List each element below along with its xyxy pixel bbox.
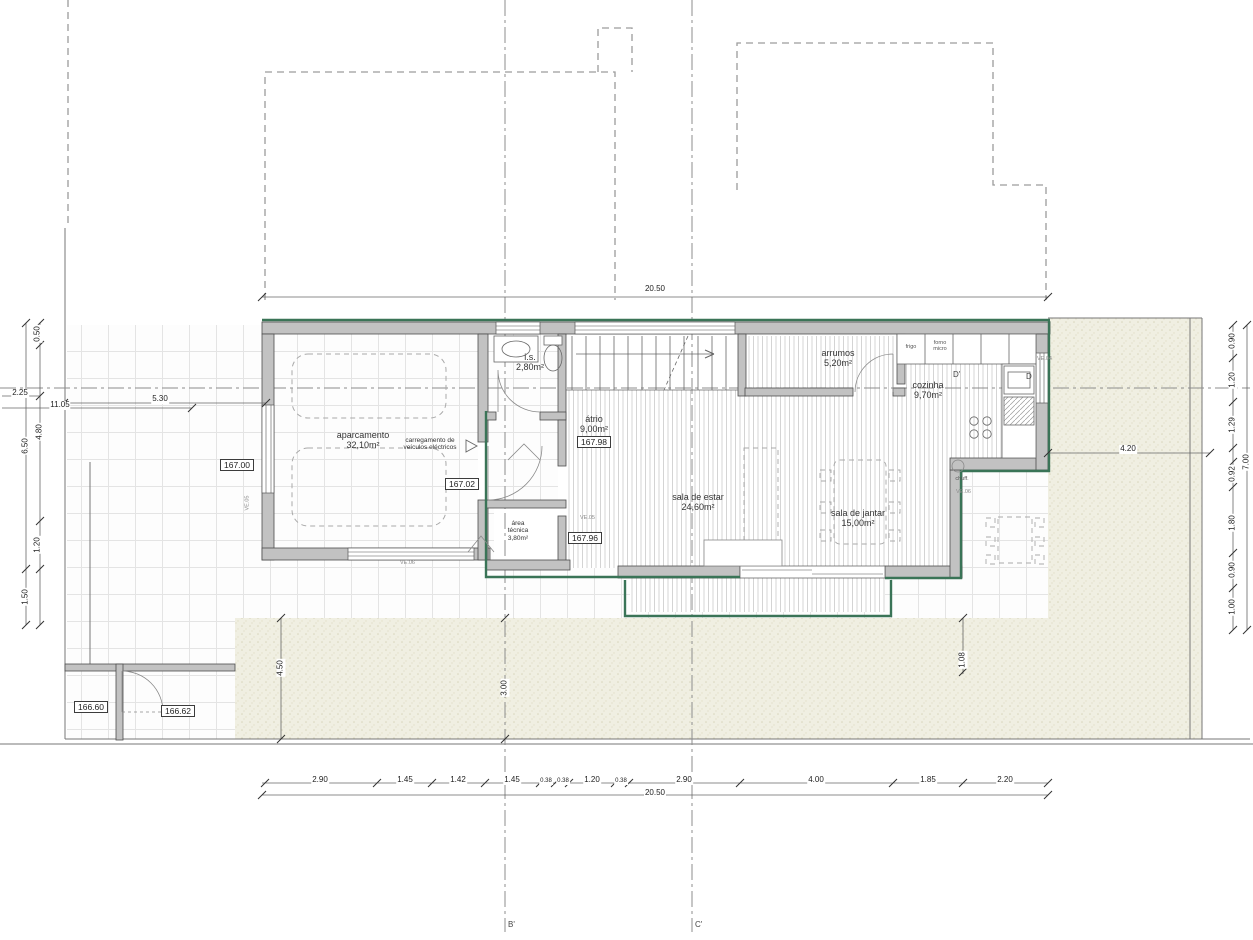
dim-right-120: 1.20	[1229, 371, 1238, 389]
room-name-arrumos: arrumos	[821, 348, 854, 358]
dim-right-090b: 0.90	[1229, 561, 1238, 579]
floor-plan-page: aparcamento 32,10m² carregamento de veíc…	[0, 0, 1253, 940]
dim-right-180: 1.80	[1229, 514, 1238, 532]
dim-right-092: 0.92	[1229, 465, 1238, 483]
tech-line1: área	[508, 520, 529, 527]
dim-inner-300: 3.00	[501, 679, 510, 697]
dim-right-090a: 0.90	[1229, 332, 1238, 350]
dim-bottom-8: 2.90	[675, 776, 693, 785]
label-chuff: chuff.	[955, 476, 968, 482]
dim-bottom-11: 2.20	[996, 776, 1014, 785]
room-area-arrumos: 5,20m²	[821, 358, 854, 368]
dim-bottom-total: 20.50	[644, 789, 666, 798]
dim-bottom-3: 1.45	[503, 776, 521, 785]
ev-line2: veículos eléctricos	[403, 444, 456, 451]
room-name-aparcamento: aparcamento	[337, 430, 390, 440]
section-marker-d: D	[1026, 372, 1032, 381]
window-code-garage-bottom: VE.06	[400, 560, 415, 566]
dim-left-530: 5.30	[151, 395, 169, 404]
room-area-sala-estar: 24,60m²	[672, 502, 724, 512]
room-area-is: 2,80m²	[516, 362, 544, 372]
dim-left-1105: 11.05	[49, 401, 70, 410]
dim-inner-108: 1.08	[959, 651, 968, 669]
dim-bottom-4: 0.38	[539, 778, 553, 785]
section-marker-b: B'	[508, 920, 515, 929]
frigo-text: frigo	[906, 344, 917, 350]
stairs	[566, 336, 738, 390]
dim-bottom-7: 0.38	[614, 778, 628, 785]
room-name-is: i.s.	[516, 352, 544, 362]
dim-right-700: 7.00	[1243, 453, 1252, 471]
level-marker-167-00: 167.00	[220, 459, 254, 471]
room-label-aparcamento: aparcamento 32,10m²	[337, 430, 390, 450]
upper-floor-dashed-outline	[68, 0, 1046, 300]
dim-bottom-2: 1.42	[449, 776, 467, 785]
window-code-hall: VE.05	[580, 515, 595, 521]
plan-drawing	[0, 0, 1253, 940]
chuff-text: chuff.	[955, 476, 968, 482]
room-label-atrio: átrio 9,00m²	[580, 414, 608, 434]
dim-bottom-6: 1.20	[583, 776, 601, 785]
dim-left-120: 1.20	[34, 536, 43, 554]
dim-bottom-9: 4.00	[807, 776, 825, 785]
dim-left-050: 0.50	[34, 325, 43, 343]
level-marker-166-60: 166.60	[74, 701, 108, 713]
micro-text: micro	[933, 346, 946, 352]
dim-left-650: 6.50	[22, 437, 31, 455]
room-name-sala-estar: sala de estar	[672, 492, 724, 502]
room-area-atrio: 9,00m²	[580, 424, 608, 434]
window-code-terrace: VE.06	[956, 489, 971, 495]
level-marker-167-96: 167.96	[568, 532, 602, 544]
room-label-area-tecnica: área técnica 3,80m²	[508, 520, 529, 542]
room-label-cozinha: cozinha 9,70m²	[912, 380, 943, 400]
window-code-kitchen: VE.04	[1037, 356, 1052, 362]
dim-bottom-0: 2.90	[311, 776, 329, 785]
ev-line1: carregamento de	[403, 437, 456, 444]
level-marker-166-62: 166.62	[161, 705, 195, 717]
room-name-cozinha: cozinha	[912, 380, 943, 390]
dim-bottom-1: 1.45	[396, 776, 414, 785]
tech-area: 3,80m²	[508, 535, 529, 542]
dim-inner-450: 4.50	[277, 659, 286, 677]
dim-left-150: 1.50	[22, 588, 31, 606]
dim-top-total: 20.50	[644, 285, 666, 294]
dim-bottom-5: 0.38	[556, 778, 570, 785]
label-forno-micro: forno micro	[933, 340, 946, 352]
dim-bottom-10: 1.85	[919, 776, 937, 785]
dim-left-480: 4.80	[36, 423, 45, 441]
room-area-aparcamento: 32,10m²	[337, 440, 390, 450]
room-label-sala-estar: sala de estar 24,60m²	[672, 492, 724, 512]
room-label-arrumos: arrumos 5,20m²	[821, 348, 854, 368]
kitchen-island-counter	[704, 540, 782, 566]
dim-right-420: 4.20	[1119, 445, 1137, 454]
tech-line2: técnica	[508, 527, 529, 534]
room-area-sala-jantar: 15,00m²	[831, 518, 885, 528]
dim-right-129: 1.29	[1229, 416, 1238, 434]
label-frigo: frigo	[906, 344, 917, 350]
room-label-is: i.s. 2,80m²	[516, 352, 544, 372]
dim-left-225: 2.25	[11, 389, 29, 398]
room-name-sala-jantar: sala de jantar	[831, 508, 885, 518]
window-code-garage-left: VE.05	[244, 496, 250, 511]
section-marker-c: C'	[695, 920, 702, 929]
room-label-sala-jantar: sala de jantar 15,00m²	[831, 508, 885, 528]
label-ev-charging: carregamento de veículos eléctricos	[403, 437, 456, 452]
room-name-atrio: átrio	[580, 414, 608, 424]
room-area-cozinha: 9,70m²	[912, 390, 943, 400]
dim-right-100: 1.00	[1229, 598, 1238, 616]
level-marker-167-02: 167.02	[445, 478, 479, 490]
level-marker-167-98: 167.98	[577, 436, 611, 448]
section-marker-d-prime: D'	[953, 370, 960, 379]
